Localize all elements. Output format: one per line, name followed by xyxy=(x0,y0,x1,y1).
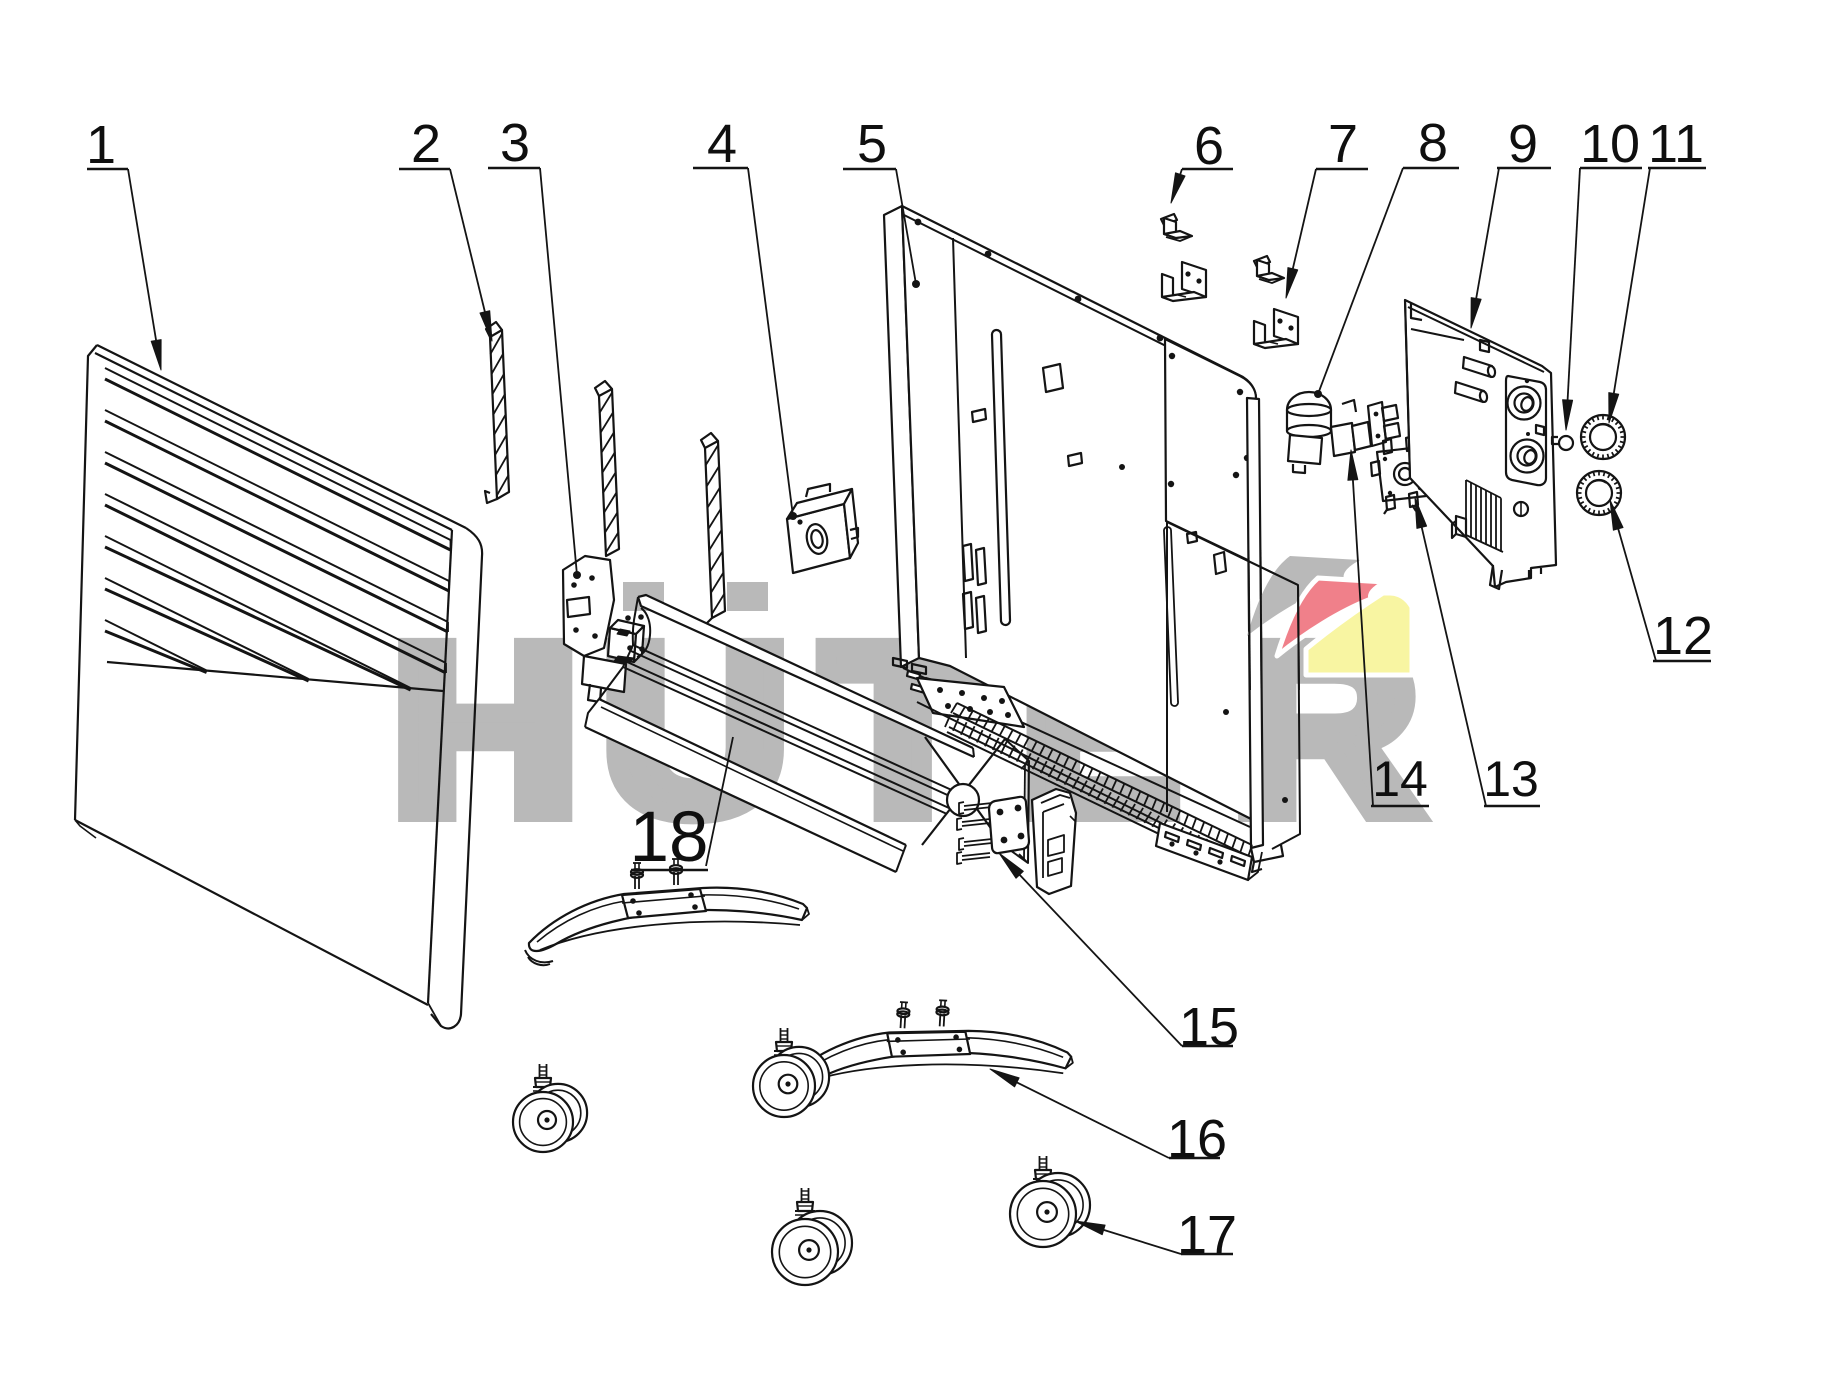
svg-text:9: 9 xyxy=(1508,114,1538,174)
svg-text:13: 13 xyxy=(1483,751,1539,807)
svg-text:10: 10 xyxy=(1580,114,1640,174)
svg-text:4: 4 xyxy=(707,114,737,174)
svg-text:12: 12 xyxy=(1653,606,1713,666)
svg-text:7: 7 xyxy=(1328,114,1358,174)
svg-text:8: 8 xyxy=(1418,113,1448,173)
svg-text:3: 3 xyxy=(500,113,530,173)
svg-text:2: 2 xyxy=(411,114,441,174)
svg-text:17: 17 xyxy=(1177,1205,1237,1265)
svg-text:11: 11 xyxy=(1648,114,1704,174)
svg-text:15: 15 xyxy=(1179,997,1239,1057)
svg-text:16: 16 xyxy=(1167,1109,1227,1169)
svg-text:H: H xyxy=(391,596,580,864)
svg-text:18: 18 xyxy=(630,798,709,877)
svg-text:6: 6 xyxy=(1194,116,1224,176)
svg-text:1: 1 xyxy=(86,115,116,175)
svg-text:14: 14 xyxy=(1372,751,1428,807)
svg-text:5: 5 xyxy=(857,114,887,174)
